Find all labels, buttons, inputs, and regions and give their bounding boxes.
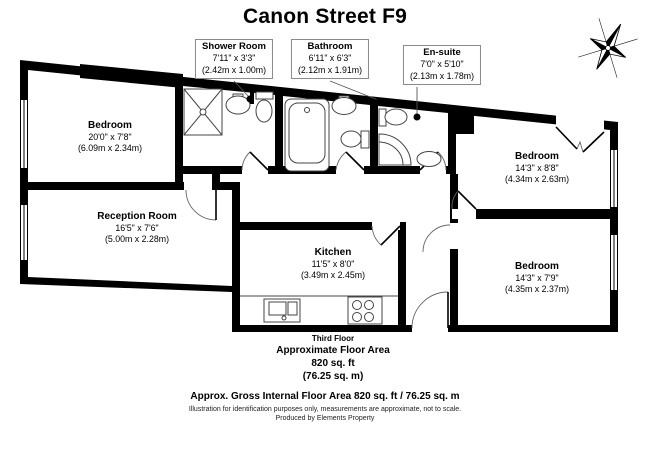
ensuite-basin-icon (417, 152, 441, 167)
bathroom-toilet-icon (361, 131, 369, 148)
label-bedroom-right: Bedroom 14'3" x 8'8" (4.34m x 2.63m) (505, 150, 569, 186)
disclaimer-text: Illustration for identification purposes… (0, 406, 650, 413)
page-title: Canon Street F9 (0, 5, 650, 29)
shower-room-toilet-icon (256, 92, 273, 99)
floor-area-summary: Third Floor Approximate Floor Area 820 s… (276, 334, 390, 383)
floorplan-page: Canon Street F9 Shower Room 7'11" x 3'3"… (0, 0, 650, 459)
label-bathroom: Bathroom 6'11" x 6'3" (2.12m x 1.91m) (291, 39, 369, 79)
gross-area-text: Approx. Gross Internal Floor Area 820 sq… (0, 391, 650, 402)
shower-room-basin-icon (226, 96, 250, 114)
label-bedroom-bottom-right: Bedroom 14'3" x 7'9" (4.35m x 2.37m) (505, 260, 569, 296)
bathroom-basin-icon (332, 98, 356, 115)
label-bedroom-top-left: Bedroom 20'0" x 7'8" (6.09m x 2.34m) (78, 119, 142, 155)
label-shower-room: Shower Room 7'11" x 3'3" (2.42m x 1.00m) (195, 39, 273, 79)
label-kitchen: Kitchen 11'5" x 8'0" (3.49m x 2.45m) (301, 246, 365, 282)
producer-text: Produced by Elements Property (0, 415, 650, 422)
label-ensuite: En-suite 7'0" x 5'10" (2.13m x 1.78m) (403, 45, 481, 85)
label-reception-room: Reception Room 16'5" x 7'6" (5.00m x 2.2… (97, 210, 176, 246)
